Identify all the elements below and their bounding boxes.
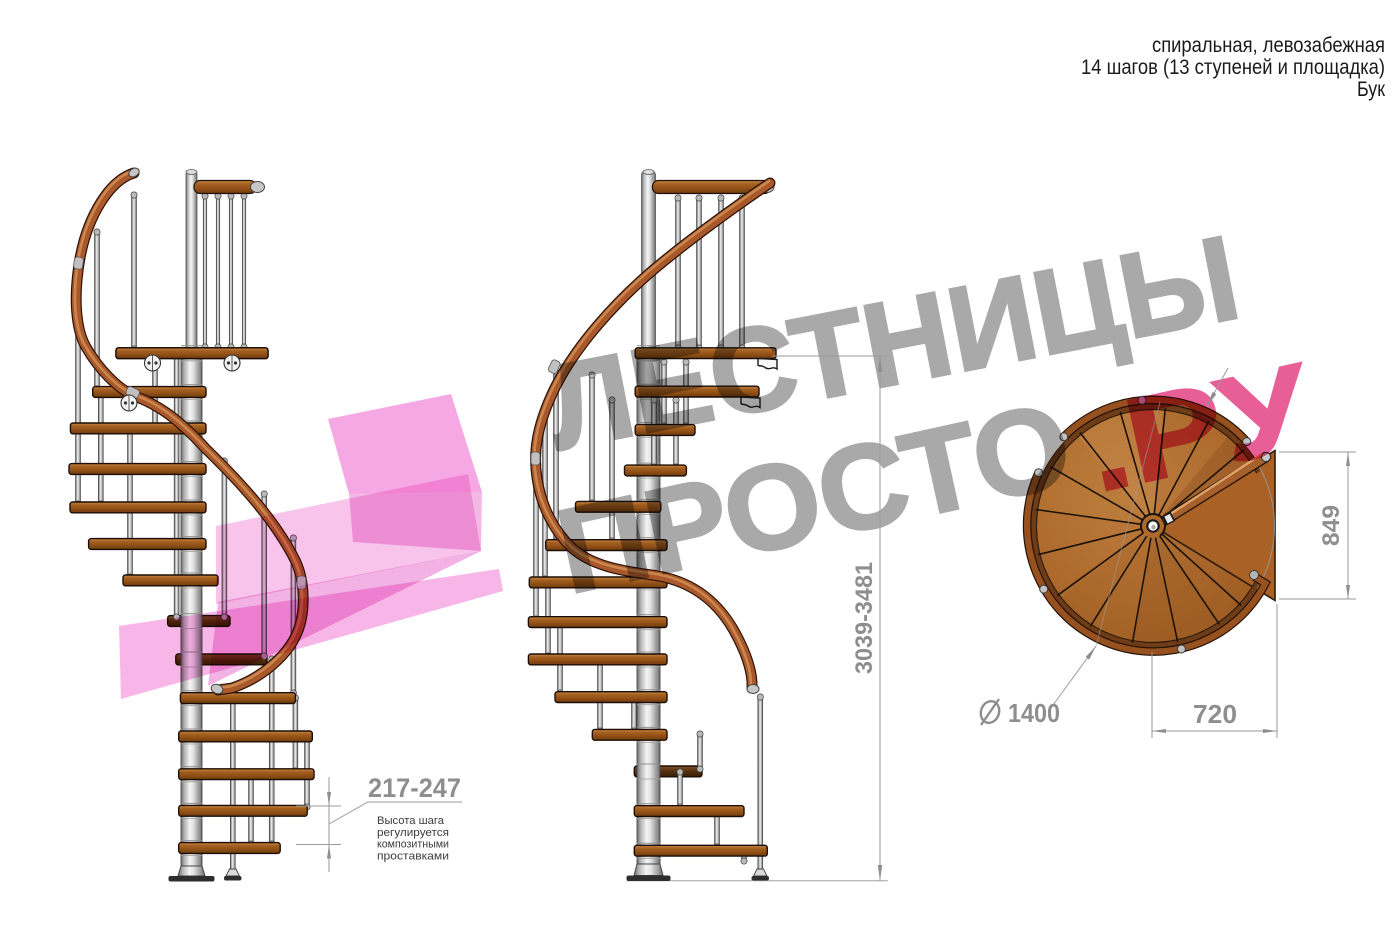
- svg-text:720: 720: [1193, 699, 1237, 729]
- svg-text:спиральная, левозабежная: спиральная, левозабежная: [1152, 33, 1385, 57]
- svg-text:3039-3481: 3039-3481: [851, 562, 878, 674]
- svg-text:Бук: Бук: [1357, 77, 1385, 101]
- svg-text:проставками: проставками: [377, 850, 449, 862]
- svg-text:849: 849: [1318, 505, 1345, 546]
- svg-text:217-247: 217-247: [368, 773, 461, 803]
- svg-text:Высота шага: Высота шага: [377, 815, 445, 827]
- svg-text:композитными: композитными: [377, 839, 449, 851]
- svg-text:регулируется: регулируется: [377, 827, 449, 839]
- svg-text:14 шагов (13 ступеней и площад: 14 шагов (13 ступеней и площадка): [1081, 55, 1385, 79]
- svg-text:1400: 1400: [1008, 698, 1060, 728]
